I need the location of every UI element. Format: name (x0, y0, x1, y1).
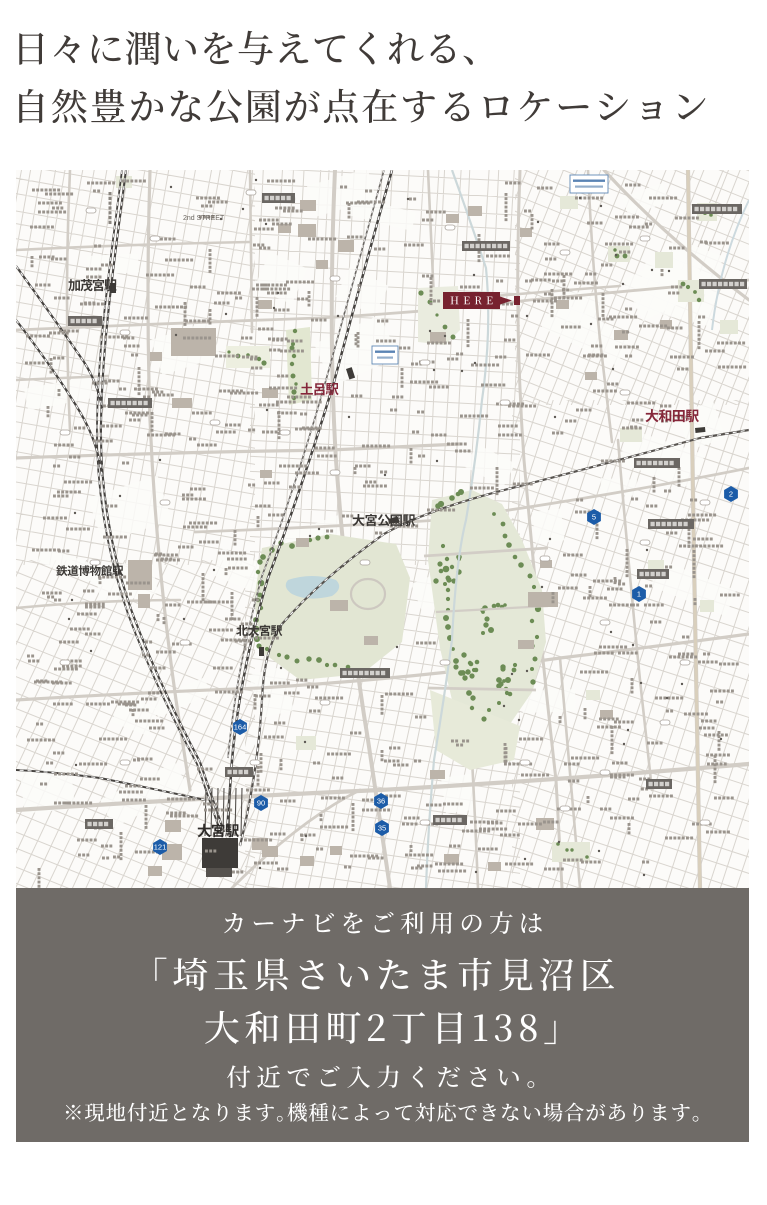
svg-text:2: 2 (729, 490, 733, 499)
svg-text:1: 1 (637, 590, 641, 599)
svg-text:35: 35 (378, 824, 386, 833)
svg-text:36: 36 (377, 797, 385, 806)
svg-text:121: 121 (154, 843, 167, 852)
svg-text:164: 164 (234, 723, 247, 732)
svg-text:5: 5 (592, 513, 596, 522)
svg-text:90: 90 (257, 799, 265, 808)
svg-text:2nd STREET: 2nd STREET (183, 215, 225, 222)
